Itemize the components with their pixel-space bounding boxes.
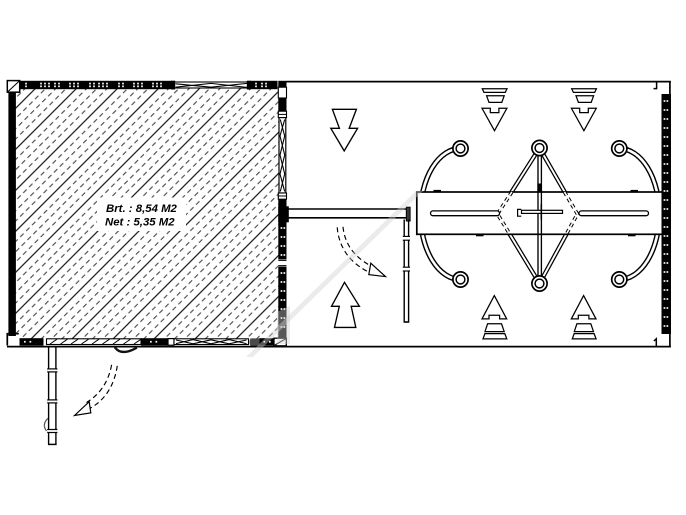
svg-text:Net : 5,35 M2: Net : 5,35 M2 xyxy=(105,217,175,229)
svg-text:Brt. : 8,54 M2: Brt. : 8,54 M2 xyxy=(106,203,178,215)
